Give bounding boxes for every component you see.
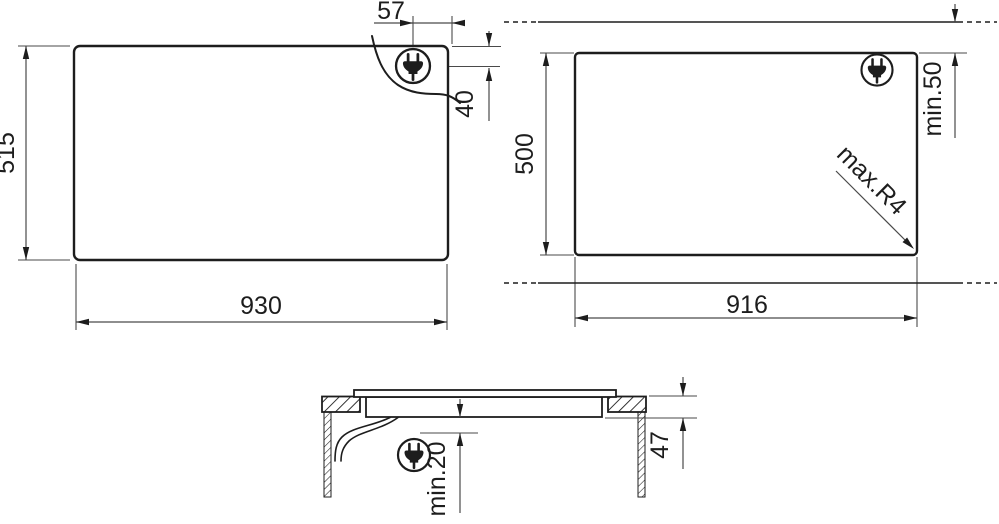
cutout-view-diagram: 500 916 min.50	[504, 4, 997, 327]
power-plug-icon	[396, 49, 430, 83]
dim-plug-offset-y: 40	[451, 31, 501, 121]
cutout-depth-label: 500	[511, 133, 539, 175]
arrowhead-down	[23, 247, 29, 260]
arrowhead-left	[575, 315, 588, 321]
dim-cutout-width: 916	[575, 257, 917, 327]
wall-clearance-label: min.50	[919, 61, 947, 136]
arrowhead-up	[457, 433, 463, 446]
arrowhead-down	[486, 33, 492, 46]
power-cable-outer	[335, 418, 390, 462]
installation-drawing-page: 515 930 57 40	[0, 0, 999, 524]
dim-cutout-depth: 500	[511, 53, 574, 255]
worktop-section-right	[608, 397, 646, 413]
arrowhead-down	[680, 383, 686, 396]
top-view-diagram: 515 930 57 40	[0, 0, 501, 330]
dim-wall-clearance: min.50	[919, 4, 967, 138]
arrowhead-left	[76, 319, 89, 325]
section-view-diagram: min.20 47	[322, 377, 697, 517]
hob-installation-drawing: 515 930 57 40	[0, 0, 999, 524]
plug-offset-y-label: 40	[451, 90, 479, 118]
bottom-clearance-label: min.20	[423, 441, 451, 516]
plug-offset-x-label: 57	[377, 0, 405, 25]
arrowhead-up	[486, 68, 492, 81]
hob-glass-top	[354, 390, 616, 397]
hob-body-section	[366, 397, 602, 417]
worktop-section-left	[322, 397, 360, 413]
dim-hob-depth: 515	[0, 46, 70, 260]
cabinet-panel-left	[324, 412, 331, 497]
power-plug-icon	[861, 54, 892, 85]
arrowhead-up	[680, 418, 686, 431]
power-cable-inner	[341, 418, 398, 462]
arrowhead-down	[543, 242, 549, 255]
arrowhead-up	[543, 53, 549, 66]
cutout-width-label: 916	[726, 291, 768, 319]
installation-height-label: 47	[646, 431, 674, 459]
arrowhead-right	[904, 315, 917, 321]
arrowhead-right	[434, 319, 447, 325]
dim-installation-height: 47	[605, 377, 697, 469]
arrowhead-down	[952, 9, 958, 22]
hob-depth-label: 515	[0, 132, 20, 174]
dim-plug-offset-x: 57	[374, 0, 465, 44]
arrowhead-left	[452, 20, 465, 26]
cabinet-panel-right	[638, 412, 645, 497]
hob-width-label: 930	[240, 292, 282, 320]
hob-outline	[74, 46, 448, 260]
dim-hob-width: 930	[76, 264, 447, 330]
arrowhead-up	[23, 46, 29, 59]
arrowhead-up	[952, 53, 958, 66]
